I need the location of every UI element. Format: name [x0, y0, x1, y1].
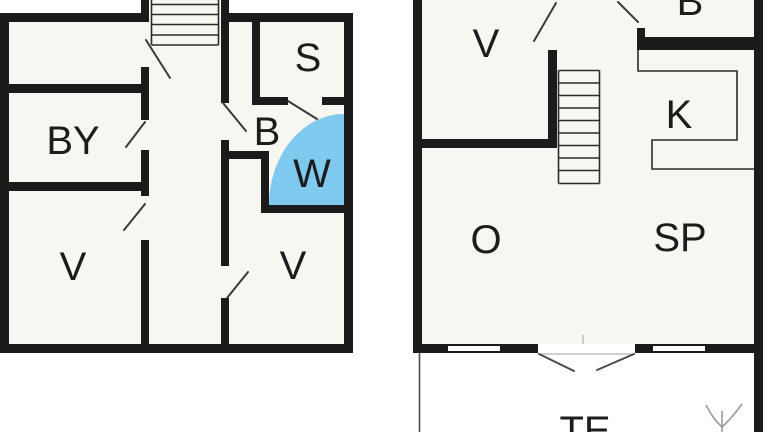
room-label-s: S: [295, 38, 322, 78]
room-label-b-left: B: [254, 112, 281, 152]
patio-door: [538, 335, 635, 371]
room-label-by: BY: [46, 121, 99, 161]
room-label-v-upper: V: [473, 24, 500, 64]
kitchen-counter: [638, 50, 754, 169]
floor-plan-image: BY S B W V V V B K O SP TE: [0, 0, 768, 432]
room-label-b-upper: B: [677, 0, 704, 22]
stairs-icon: [559, 71, 600, 184]
room-label-w: W: [293, 154, 331, 194]
north-arrow-icon: [706, 404, 742, 432]
room-label-te: TE: [559, 411, 610, 432]
room-label-v-left: V: [60, 247, 87, 287]
room-label-o: O: [470, 220, 501, 260]
stairs-icon: [152, 0, 219, 45]
door-swing-lines: [124, 2, 638, 298]
room-label-v-right: V: [280, 246, 307, 286]
room-label-k: K: [666, 95, 693, 135]
room-label-sp: SP: [653, 218, 706, 258]
